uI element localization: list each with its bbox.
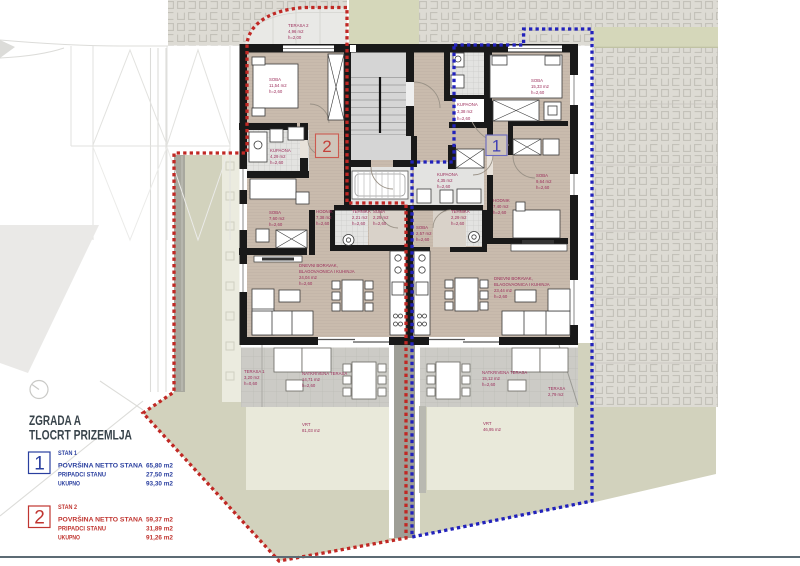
svg-text:15,33 m2: 15,33 m2 [531,84,550,89]
svg-text:h=2,60: h=2,60 [531,90,545,95]
svg-text:POVRŠINA NETTO STANA: POVRŠINA NETTO STANA [58,461,143,470]
svg-text:h=2,60: h=2,60 [269,222,283,227]
svg-text:1: 1 [492,137,501,156]
svg-text:SOBA: SOBA [269,77,281,82]
svg-text:23,44 m2: 23,44 m2 [494,288,513,293]
svg-text:h=2,60: h=2,60 [316,221,330,226]
svg-text:SOBA: SOBA [536,173,548,178]
svg-text:h=2,60: h=2,60 [270,160,284,165]
svg-text:h=2,60: h=2,60 [416,237,430,242]
svg-text:1: 1 [34,454,45,475]
svg-text:4,96 m2: 4,96 m2 [288,29,304,34]
svg-text:65,80 m2: 65,80 m2 [146,463,173,470]
svg-text:4,29 m2: 4,29 m2 [270,154,286,159]
svg-text:PRIPADCI STANU: PRIPADCI STANU [58,472,106,479]
svg-text:h=2,60: h=2,60 [493,210,507,215]
svg-text:h=2,60: h=2,60 [299,281,313,286]
svg-text:7,60 m2: 7,60 m2 [269,216,285,221]
svg-text:2,29 m2: 2,29 m2 [451,215,467,220]
svg-text:7,40 m2: 7,40 m2 [493,204,509,209]
svg-text:h=0,60: h=0,60 [244,381,258,386]
svg-text:HODNIK: HODNIK [493,198,510,203]
svg-text:KUPAONA: KUPAONA [457,102,478,107]
svg-text:h=2,60: h=2,60 [437,184,451,189]
svg-text:TERASA 2: TERASA 2 [288,23,309,28]
svg-text:TEHNIKA: TEHNIKA [352,209,371,214]
svg-text:14,71 m2: 14,71 m2 [302,377,321,382]
svg-text:STAN 1: STAN 1 [58,450,77,457]
svg-text:59,37 m2: 59,37 m2 [146,517,173,524]
svg-text:TERASA 1: TERASA 1 [244,369,265,374]
svg-text:31,89 m2: 31,89 m2 [146,526,173,533]
svg-text:11,54 m2: 11,54 m2 [269,83,287,88]
svg-text:2,57 m2: 2,57 m2 [416,231,432,236]
svg-text:NATKRIVENA TERASA: NATKRIVENA TERASA [482,370,527,375]
svg-text:SOBA: SOBA [416,225,428,230]
svg-text:3,20 m2: 3,20 m2 [244,375,260,380]
svg-text:2: 2 [34,508,45,529]
svg-text:h=2,60: h=2,60 [352,221,366,226]
svg-text:SOBA: SOBA [269,210,281,215]
svg-text:9,64 m2: 9,64 m2 [536,179,552,184]
svg-text:BLAGOVAONICA I KUHINJA: BLAGOVAONICA I KUHINJA [494,282,550,287]
svg-text:93,30 m2: 93,30 m2 [146,481,173,488]
svg-text:h=2,60: h=2,60 [536,185,550,190]
svg-text:h=2,00: h=2,00 [288,35,302,40]
svg-text:h=2,60: h=2,60 [457,116,471,121]
svg-text:DNEVNI BORAVAK,: DNEVNI BORAVAK, [494,276,533,281]
svg-text:3,38 m2: 3,38 m2 [457,109,473,114]
svg-text:2,21 m2: 2,21 m2 [352,215,368,220]
svg-text:POVRŠINA NETTO STANA: POVRŠINA NETTO STANA [58,515,143,524]
svg-text:2,79 m2: 2,79 m2 [548,392,564,397]
svg-text:h=2,60: h=2,60 [482,382,496,387]
svg-text:h=2,60: h=2,60 [494,294,508,299]
svg-text:TEHNIKA: TEHNIKA [451,209,470,214]
svg-text:TLOCRT PRIZEMLJA: TLOCRT PRIZEMLJA [29,427,132,443]
svg-text:h=2,60: h=2,60 [373,221,387,226]
svg-text:UKUPNO: UKUPNO [58,535,80,542]
svg-text:TERASA: TERASA [548,386,565,391]
svg-text:4,35 m2: 4,35 m2 [437,178,453,183]
svg-text:24,04 m2: 24,04 m2 [299,275,318,280]
svg-text:KUPAONA: KUPAONA [270,148,291,153]
svg-text:h=2,60: h=2,60 [269,89,283,94]
svg-text:PRIPADCI STANU: PRIPADCI STANU [58,526,106,533]
svg-text:BLAGOVAONICA I KUHINJA: BLAGOVAONICA I KUHINJA [299,269,355,274]
svg-text:VRT: VRT [483,421,492,426]
svg-text:VRT: VRT [302,422,311,427]
svg-text:91,26 m2: 91,26 m2 [146,535,173,542]
svg-text:81,03 m2: 81,03 m2 [302,428,321,433]
svg-text:KUPAONA: KUPAONA [437,172,458,177]
svg-text:HODNIK: HODNIK [316,209,333,214]
svg-text:SOBA: SOBA [531,78,543,83]
svg-text:27,50 m2: 27,50 m2 [146,472,173,479]
svg-text:h=2,60: h=2,60 [451,221,465,226]
svg-text:SOBA: SOBA [373,209,385,214]
svg-text:DNEVNI BORAVAK,: DNEVNI BORAVAK, [299,263,338,268]
svg-text:UKUPNO: UKUPNO [58,481,80,488]
svg-text:2: 2 [322,137,331,156]
svg-text:h=2,60: h=2,60 [302,383,316,388]
svg-text:STAN 2: STAN 2 [58,504,77,511]
svg-text:NATKRIVENA TERASA: NATKRIVENA TERASA [302,371,347,376]
svg-text:15,12 m2: 15,12 m2 [482,376,501,381]
svg-text:2,25 m2: 2,25 m2 [373,215,389,220]
svg-text:7,38 m2: 7,38 m2 [316,215,332,220]
svg-text:46,95 m2: 46,95 m2 [483,427,502,432]
